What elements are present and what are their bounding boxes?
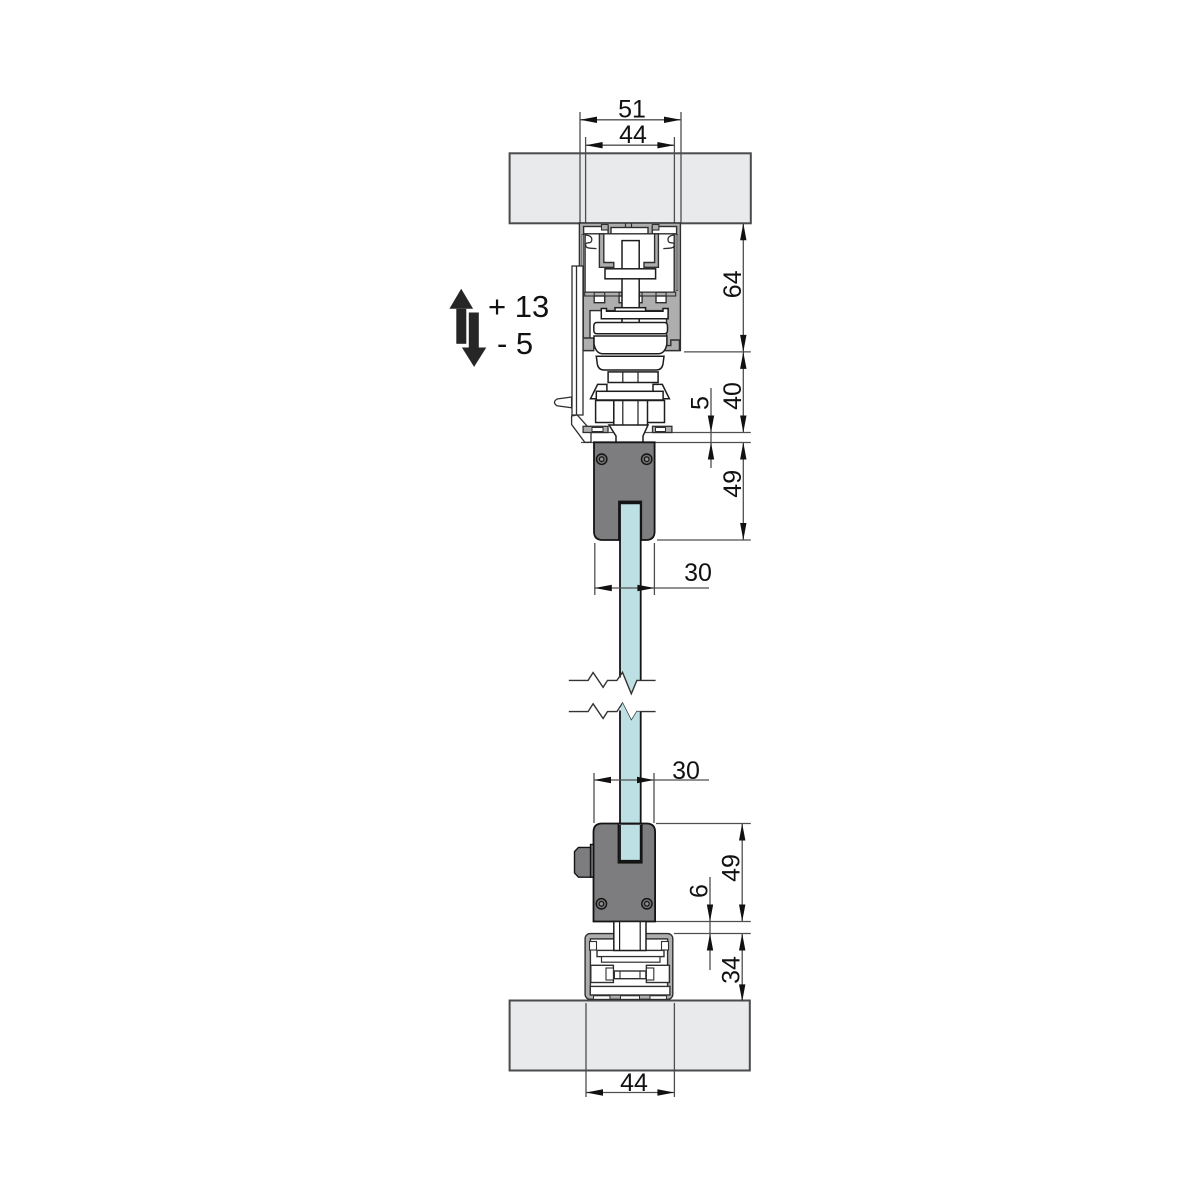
svg-text:6: 6 (685, 884, 713, 898)
svg-text:51: 51 (618, 96, 646, 124)
svg-text:- 5: - 5 (497, 326, 533, 361)
svg-text:44: 44 (620, 1069, 648, 1097)
svg-text:49: 49 (719, 470, 747, 498)
svg-text:64: 64 (719, 270, 747, 298)
svg-text:30: 30 (672, 757, 700, 785)
svg-text:30: 30 (684, 559, 712, 587)
svg-text:40: 40 (719, 382, 747, 410)
svg-text:+ 13: + 13 (488, 289, 549, 324)
svg-text:44: 44 (619, 121, 647, 149)
svg-text:5: 5 (686, 396, 714, 410)
svg-text:34: 34 (718, 956, 746, 984)
svg-text:49: 49 (718, 854, 746, 882)
